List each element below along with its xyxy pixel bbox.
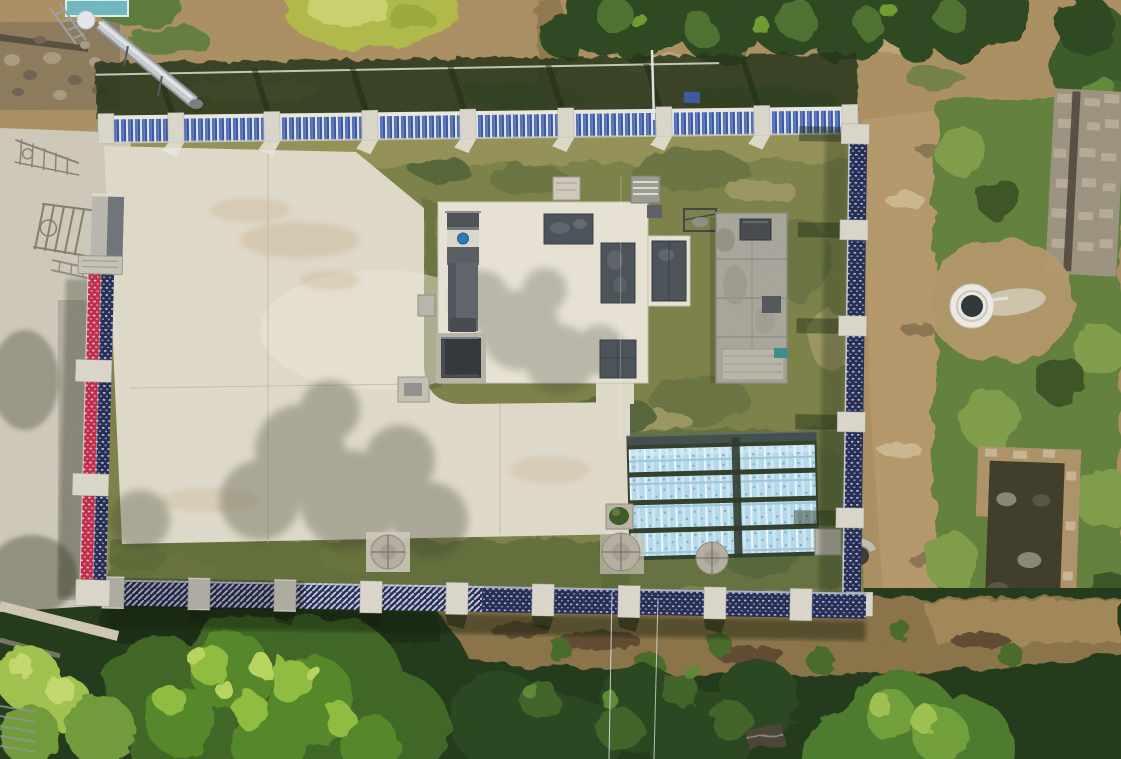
photo-grain-overlay (0, 0, 1121, 759)
aerial-photo-canvas (0, 0, 1121, 759)
aerial-photo-water-treatment-compound (0, 0, 1121, 759)
